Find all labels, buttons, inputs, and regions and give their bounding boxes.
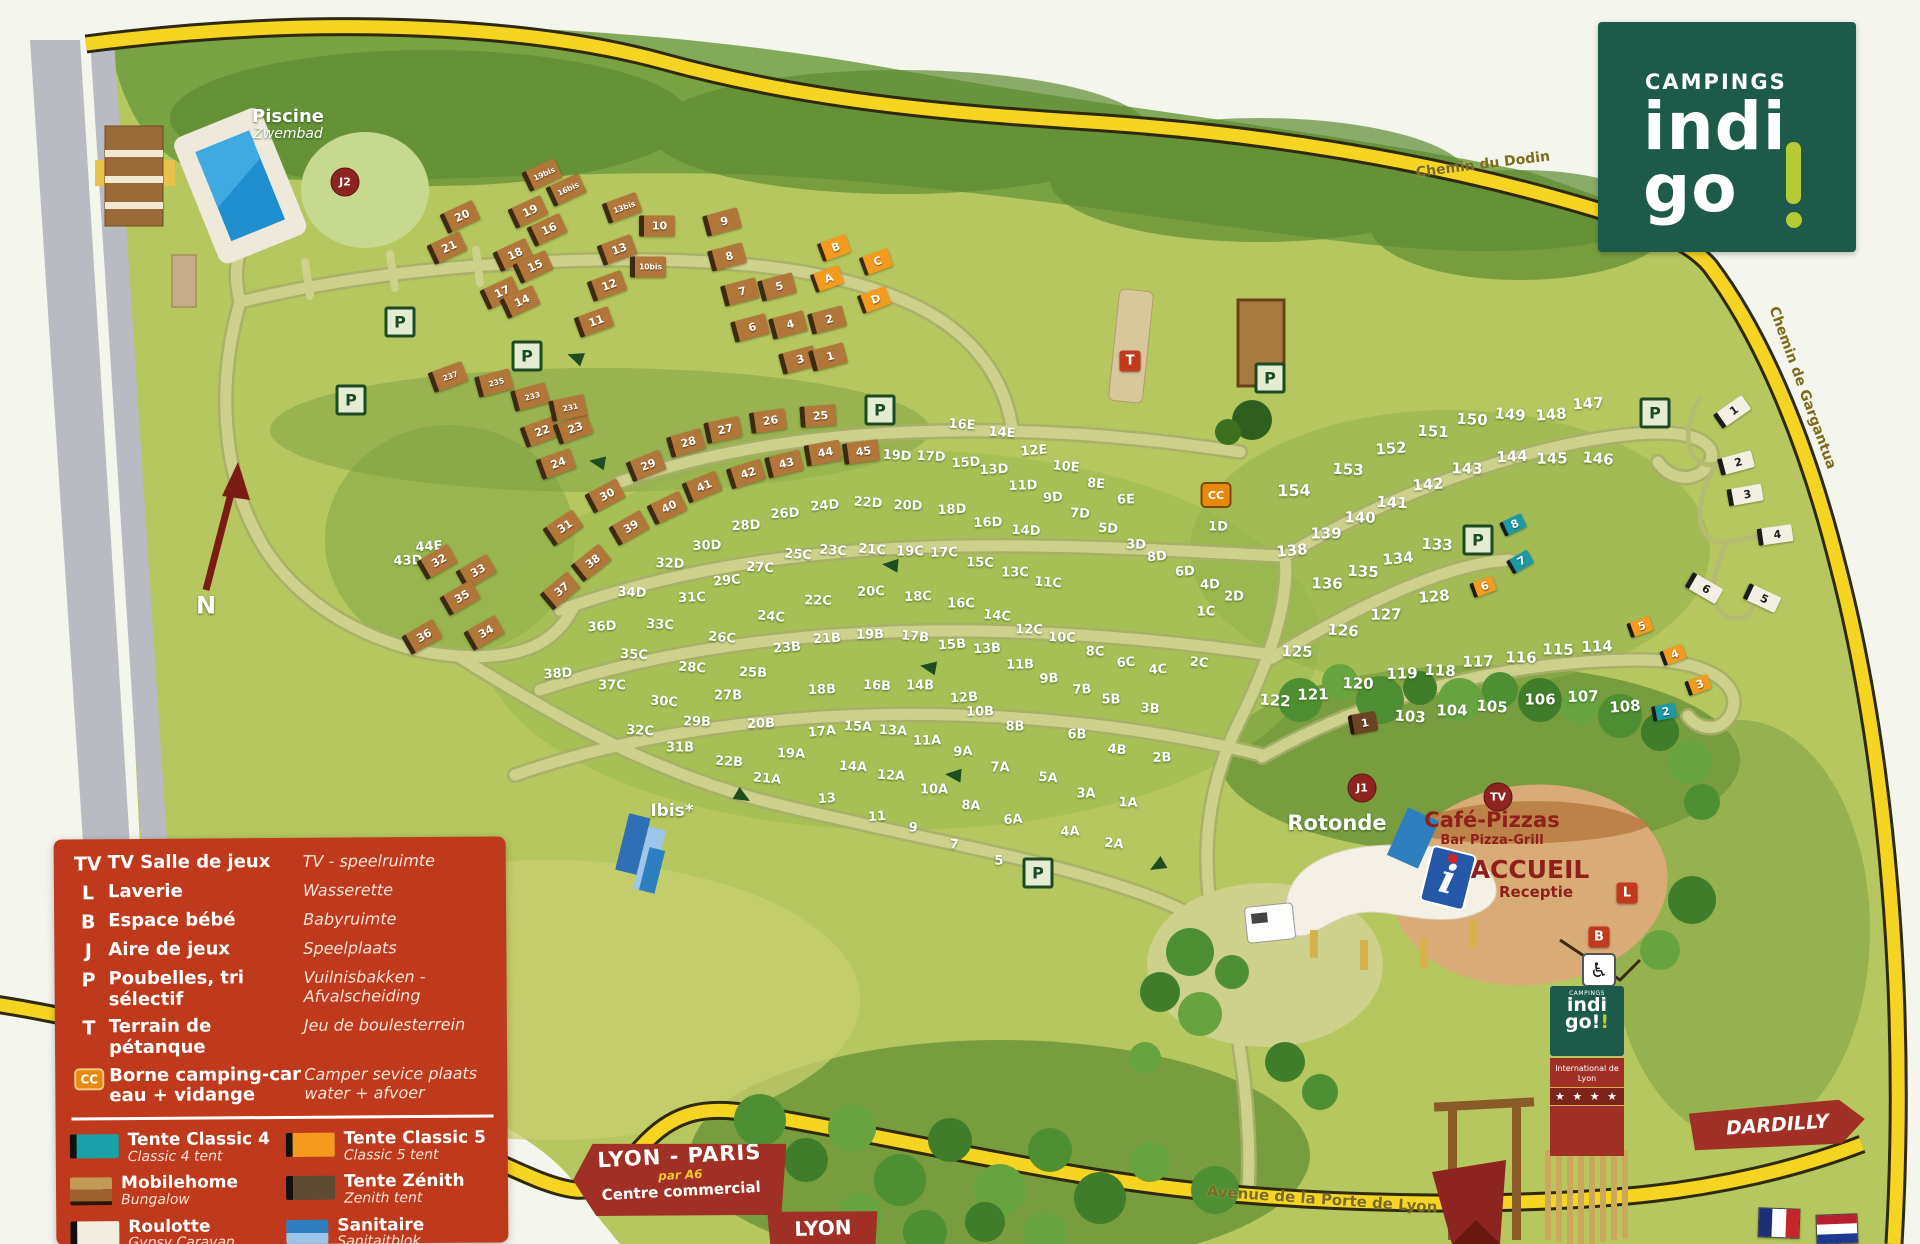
pitch-label: 125 bbox=[1281, 644, 1313, 660]
pitch-label: 6D bbox=[1175, 565, 1195, 579]
legend-label-nl: Jeu de boulesterrein bbox=[304, 1015, 465, 1035]
mobilehome-unit-number: 13 bbox=[610, 241, 628, 257]
pitch-label: 26C bbox=[708, 630, 737, 645]
tente-zenith-marker-number: 1 bbox=[1360, 717, 1369, 729]
pitch-label: 15C bbox=[966, 556, 994, 569]
tente-classic4-marker-number: 8 bbox=[1509, 518, 1521, 531]
roulotte-unit-number: 2 bbox=[1733, 456, 1743, 469]
mobilehome-unit-number: 33 bbox=[469, 562, 488, 579]
pitch-label: 27B bbox=[714, 690, 742, 703]
parking-icon: P bbox=[1463, 525, 1494, 556]
pitch-label: 127 bbox=[1370, 607, 1402, 623]
mobilehome-unit-number: 21 bbox=[440, 239, 459, 255]
pitch-label: 117 bbox=[1462, 654, 1494, 670]
pitch-label: 118 bbox=[1424, 663, 1456, 680]
mobilehome-unit-number: 7 bbox=[737, 285, 747, 298]
roulotte-unit-number: 6 bbox=[1700, 583, 1712, 596]
pitch-label: 106 bbox=[1524, 693, 1555, 708]
pitch-label: 2D bbox=[1224, 591, 1244, 604]
pitch-label: 16E bbox=[948, 418, 976, 433]
mobilehome-unit-number: 4 bbox=[785, 318, 795, 331]
legend-accommodation-fr: Roulotte bbox=[128, 1218, 235, 1237]
legend-facility-row: TTerrain de pétanqueJeu de boulesterrein bbox=[69, 1015, 495, 1059]
legend-accommodation-fr: Sanitaire bbox=[337, 1217, 424, 1235]
sign-lyon-paris: LYON - PARIS par A6 Centre commercial bbox=[571, 1130, 790, 1225]
tente-classic5-marker-number: 5 bbox=[1636, 620, 1647, 633]
mobilehome-unit-number: 19 bbox=[521, 203, 540, 219]
mobilehome-unit-number: 16bis bbox=[556, 181, 580, 197]
legend-facility-row: JAire de jeuxSpeelplaats bbox=[68, 938, 494, 963]
mobilehome-unit-number: 43 bbox=[778, 456, 796, 470]
legend-label-nl: Camper sevice plaats water + afvoer bbox=[304, 1063, 477, 1103]
mobilehome-unit-number: 235 bbox=[488, 377, 505, 388]
bar-pizza-grill-label: Bar Pizza-Grill bbox=[1440, 834, 1543, 848]
tente-classic4-marker-number: 7 bbox=[1516, 554, 1528, 567]
direction-arrow-icon bbox=[919, 659, 937, 676]
mobilehome-unit-number: 34 bbox=[477, 623, 496, 640]
pitch-label: 1D bbox=[1208, 520, 1228, 533]
tente-classic5-unit-number: C bbox=[872, 255, 883, 268]
pitch-label: 152 bbox=[1375, 440, 1407, 457]
pitch-label: 5A bbox=[1038, 771, 1058, 786]
pitch-label: 6A bbox=[1003, 813, 1023, 827]
mobilehome-unit-number: 237 bbox=[442, 370, 459, 382]
mobilehome-unit-number: 233 bbox=[524, 391, 541, 402]
pitch-label: 14A bbox=[839, 760, 868, 774]
mobilehome-unit-number: 26 bbox=[762, 414, 779, 427]
cafe-pizzas-label: Café-Pizzas bbox=[1424, 809, 1559, 831]
parking-icon: P bbox=[1023, 858, 1054, 889]
north-label: N bbox=[196, 593, 216, 618]
pitch-label: 5 bbox=[994, 854, 1003, 867]
mobilehome-unit-number: 11 bbox=[587, 313, 605, 329]
pitch-label: 35C bbox=[620, 648, 648, 662]
t-marker-icon: T bbox=[1120, 351, 1141, 372]
pitch-label: 38D bbox=[543, 667, 573, 682]
legend-accommodation-text: Tente Classic 4Classic 4 tent bbox=[128, 1131, 270, 1165]
mobilehome-unit-number: 19bis bbox=[532, 166, 556, 182]
pitch-label: 151 bbox=[1417, 424, 1449, 441]
legend-facilities: TVTV Salle de jeuxTV - speelruimteLLaver… bbox=[68, 851, 496, 1108]
legend-label-fr: Aire de jeux bbox=[108, 939, 303, 961]
legend-accommodation-nl: Classic 4 tent bbox=[128, 1149, 270, 1165]
pitch-label: 21B bbox=[813, 632, 842, 646]
roulotte-unit-number: 1 bbox=[1728, 404, 1741, 417]
pitch-label: 147 bbox=[1572, 396, 1604, 413]
legend-accommodation-text: Tente Classic 5Classic 5 tent bbox=[344, 1130, 486, 1164]
tente-classic5-marker-number: 4 bbox=[1669, 648, 1680, 661]
mobilehome-unit-number: 2 bbox=[824, 313, 834, 326]
pitch-label: 20D bbox=[893, 499, 922, 513]
wheelchair-icon: ♿ bbox=[1582, 953, 1616, 987]
pitch-label: 11B bbox=[1006, 658, 1034, 671]
legend-label-nl: TV - speelruimte bbox=[303, 851, 435, 871]
pitch-label: 16B bbox=[863, 679, 892, 693]
legend-facility-row: LLaverieWasserette bbox=[68, 880, 494, 905]
j2-marker-icon: J2 bbox=[331, 168, 360, 197]
pitch-label: 128 bbox=[1418, 588, 1451, 606]
legend-facility-row: TVTV Salle de jeuxTV - speelruimte bbox=[68, 851, 494, 876]
pitch-label: 104 bbox=[1436, 704, 1467, 719]
pitch-label: 24D bbox=[810, 498, 840, 513]
pitch-label: 14C bbox=[983, 608, 1012, 623]
camper-service-icon: CC bbox=[74, 1068, 104, 1090]
pitch-label: 121 bbox=[1297, 687, 1329, 703]
pitch-label: 150 bbox=[1456, 412, 1488, 429]
pitch-label: 145 bbox=[1536, 451, 1568, 467]
legend-accommodation-nl: Zenith tent bbox=[344, 1191, 465, 1207]
mobilehome-unit-number: 25 bbox=[812, 410, 828, 422]
mobilehome-unit-number: 28 bbox=[680, 435, 698, 450]
tente-classic5-unit-number: D bbox=[870, 293, 882, 306]
pitch-label: 2A bbox=[1104, 837, 1124, 852]
mobilehome-unit-number: 1 bbox=[825, 350, 835, 363]
legend-facility-row: CCBorne camping-car eau + vidangeCamper … bbox=[69, 1063, 495, 1107]
pitch-label: 134 bbox=[1382, 550, 1415, 568]
c4-swatch bbox=[70, 1134, 119, 1158]
postsign-subtitle: International de Lyon bbox=[1550, 1064, 1624, 1083]
mobilehome-unit-number: 14 bbox=[513, 293, 532, 309]
pitch-label: 103 bbox=[1394, 708, 1426, 725]
campground-map-page: i bbox=[0, 0, 1920, 1244]
rotonde-label: Rotonde bbox=[1287, 812, 1386, 834]
mobilehome-unit-number: 20 bbox=[453, 208, 472, 224]
pitch-label: 1A bbox=[1118, 796, 1138, 810]
pitch-label: 19D bbox=[882, 449, 912, 464]
pitch-label: 9A bbox=[953, 745, 973, 759]
legend-accommodation-fr: Mobilehome bbox=[121, 1175, 238, 1194]
legend-label-nl: Babyruimte bbox=[303, 909, 396, 929]
pitch-label: 142 bbox=[1412, 476, 1444, 493]
pitch-label: 25C bbox=[784, 548, 812, 563]
c5-swatch bbox=[286, 1133, 335, 1157]
mobilehome-unit-number: 31 bbox=[556, 518, 575, 536]
legend-symbol: T bbox=[69, 1018, 109, 1040]
mobilehome-unit-number: 36 bbox=[415, 627, 434, 644]
legend-accommodation-nl: Classic 5 tent bbox=[344, 1148, 486, 1164]
pitch-label: 12A bbox=[877, 769, 906, 784]
mobilehome-unit-number: 24 bbox=[549, 455, 567, 471]
pitch-label: 26D bbox=[770, 507, 800, 521]
pitch-label: 115 bbox=[1542, 642, 1574, 658]
pitch-label: 120 bbox=[1342, 676, 1374, 692]
pitch-label: 4A bbox=[1060, 825, 1080, 839]
pitch-label: 32C bbox=[626, 724, 654, 738]
pitch-label: 21A bbox=[752, 771, 781, 786]
legend-symbol: CC bbox=[69, 1066, 109, 1090]
pool-building bbox=[95, 126, 175, 226]
legend-symbol: TV bbox=[68, 853, 108, 875]
pitch-label: 16C bbox=[947, 598, 975, 611]
legend-accommodation-nl: Gypsy Caravan bbox=[128, 1236, 235, 1244]
legend-accommodation-nl: Sanitaitblok bbox=[337, 1234, 424, 1244]
pitch-label: 18B bbox=[808, 683, 836, 697]
pitch-label: 10E bbox=[1052, 459, 1080, 474]
pitch-label: 28C bbox=[678, 661, 706, 676]
pitch-label: 3D bbox=[1126, 538, 1146, 552]
legend-accommodation-text: Tente ZénithZenith tent bbox=[344, 1173, 465, 1207]
sign-lyon: LYON bbox=[767, 1208, 878, 1244]
pitch-label: 10C bbox=[1048, 631, 1076, 645]
pitch-label: 22B bbox=[715, 755, 744, 769]
b-marker-icon: B bbox=[1589, 927, 1610, 948]
pitch-label: 5D bbox=[1098, 522, 1119, 536]
pitch-label: 22C bbox=[804, 594, 832, 607]
pitch-label: 143 bbox=[1451, 461, 1483, 477]
legend-label-fr: Poubelles, tri sélectif bbox=[108, 968, 303, 1011]
mobilehome-unit-number: 32 bbox=[430, 552, 449, 569]
pitch-label: 154 bbox=[1277, 483, 1311, 500]
pitch-label: 7B bbox=[1072, 683, 1092, 697]
legend-accommodation-item: RoulotteGypsy Caravan bbox=[70, 1218, 280, 1244]
pitch-label: 17C bbox=[930, 546, 958, 559]
pitch-label: 15A bbox=[844, 720, 873, 734]
zen-swatch bbox=[286, 1176, 335, 1200]
mobilehome-unit-number: 9 bbox=[719, 215, 729, 228]
pitch-label: 3B bbox=[1140, 702, 1160, 716]
j1-marker-icon: J1 bbox=[1348, 774, 1377, 803]
pitch-label: 12E bbox=[1020, 443, 1048, 458]
legend-accommodation-nl: Bungalow bbox=[121, 1193, 238, 1209]
legend-label-fr: Terrain de pétanque bbox=[109, 1016, 304, 1059]
ibis-label: Ibis* bbox=[650, 803, 693, 821]
pitch-label: 20C bbox=[857, 585, 885, 599]
pitch-label: 13C bbox=[1001, 567, 1029, 580]
pitch-label: 14B bbox=[906, 680, 934, 693]
legend-accommodation-item: SanitaireSanitaitblok bbox=[286, 1216, 496, 1244]
pitch-label: 3A bbox=[1076, 788, 1095, 801]
pitch-label: 133 bbox=[1421, 537, 1453, 554]
legend-panel: TVTV Salle de jeuxTV - speelruimteLLaver… bbox=[54, 836, 509, 1244]
pitch-label: 9B bbox=[1039, 672, 1059, 686]
pitch-label: 18C bbox=[904, 590, 932, 604]
legend-accommodation-item: Tente ZénithZenith tent bbox=[286, 1173, 496, 1208]
pitch-label: 27C bbox=[746, 561, 774, 575]
legend-accommodation-text: MobilehomeBungalow bbox=[121, 1175, 238, 1209]
legend-label-nl: Vuilnisbakken - Afvalscheiding bbox=[303, 967, 494, 1007]
mobilehome-unit-number: 37 bbox=[553, 580, 572, 598]
pitch-label: 9 bbox=[908, 821, 918, 835]
mobilehome-unit-number: 12 bbox=[600, 277, 618, 293]
legend-accommodation-item: Tente Classic 4Classic 4 tent bbox=[70, 1131, 280, 1166]
mobilehome-unit-number: 29 bbox=[639, 457, 657, 473]
pitch-label: 19C bbox=[896, 546, 924, 559]
pitch-label: 6B bbox=[1068, 729, 1087, 742]
pitch-label: 11A bbox=[913, 734, 941, 747]
pitch-label: 29C bbox=[713, 573, 742, 588]
pitch-label: 6E bbox=[1117, 493, 1135, 507]
san-swatch bbox=[286, 1219, 328, 1243]
legend-symbol: L bbox=[68, 882, 108, 904]
pitch-label: 148 bbox=[1535, 406, 1567, 423]
mobilehome-unit-number: 16 bbox=[540, 221, 559, 237]
pitch-label: 7 bbox=[949, 838, 959, 852]
legend-label-fr: Espace bébé bbox=[108, 910, 303, 932]
legend-label-nl: Speelplaats bbox=[303, 938, 396, 958]
legend-label-fr: Borne camping-car eau + vidange bbox=[109, 1065, 304, 1108]
pitch-label: 105 bbox=[1476, 698, 1508, 715]
mobilehome-unit-number: 23 bbox=[566, 420, 584, 436]
pitch-label: 30C bbox=[650, 695, 678, 710]
legend-label-fr: Laverie bbox=[108, 881, 303, 903]
dutch-flag-icon bbox=[1815, 1213, 1858, 1244]
legend-accommodation-fr: Tente Classic 4 bbox=[128, 1131, 270, 1150]
piscine-label: Piscine Zwembad bbox=[252, 108, 324, 142]
pitch-label: 29B bbox=[683, 715, 711, 728]
pitch-label: 108 bbox=[1609, 698, 1641, 715]
parking-icon: P bbox=[1255, 363, 1286, 394]
small-hut bbox=[172, 255, 196, 307]
pitch-label: 31B bbox=[666, 742, 694, 755]
mobilehome-unit-number: 41 bbox=[695, 478, 713, 494]
direction-arrow-icon bbox=[944, 767, 961, 782]
pitch-label: 9D bbox=[1043, 491, 1064, 505]
legend-accommodation-text: SanitaireSanitaitblok bbox=[337, 1217, 424, 1244]
mobilehome-unit: 10 bbox=[639, 216, 675, 237]
pitch-label: 22D bbox=[853, 496, 883, 511]
roulotte-unit-number: 4 bbox=[1773, 529, 1782, 541]
playground-area bbox=[301, 132, 429, 248]
postsign-stars: ★ ★ ★ ★ bbox=[1550, 1087, 1624, 1106]
camper-service-icon: CC bbox=[1201, 482, 1232, 508]
parking-icon: P bbox=[512, 341, 543, 372]
pitch-label: 140 bbox=[1344, 510, 1376, 526]
mobilehome-unit-number: 27 bbox=[717, 423, 734, 437]
tente-classic4-marker-number: 2 bbox=[1661, 706, 1670, 718]
campings-indigo-logo: CAMPINGS indi go bbox=[1598, 22, 1856, 252]
zwembad-label: Zwembad bbox=[252, 127, 324, 142]
mobilehome-unit-number: 35 bbox=[453, 588, 472, 605]
pitch-label: 34D bbox=[617, 586, 647, 600]
pitch-label: 23C bbox=[819, 544, 847, 559]
pitch-label: 25B bbox=[739, 666, 767, 680]
legend-facility-row: BEspace bébéBabyruimte bbox=[68, 909, 494, 934]
mobilehome-unit-number: 8 bbox=[724, 250, 734, 263]
legend-label-nl: Wasserette bbox=[303, 880, 393, 900]
legend-symbol: P bbox=[68, 969, 108, 991]
mobilehome-unit-number: 38 bbox=[584, 552, 603, 570]
pitch-label: 5B bbox=[1102, 694, 1121, 707]
pitch-label: 36D bbox=[587, 620, 617, 634]
mobilehome-unit-number: 5 bbox=[774, 280, 784, 293]
pitch-label: 12C bbox=[1015, 623, 1043, 636]
parking-icon: P bbox=[1640, 398, 1671, 429]
pitch-label: 4D bbox=[1200, 578, 1220, 592]
legend-accommodation-fr: Tente Zénith bbox=[344, 1173, 465, 1192]
pitch-label: 8B bbox=[1006, 721, 1025, 734]
pitch-label: 14E bbox=[988, 426, 1016, 441]
legend-accommodation-fr: Tente Classic 5 bbox=[344, 1130, 486, 1149]
pitch-label: 13B bbox=[973, 642, 1002, 656]
pitch-label: 37C bbox=[598, 680, 626, 693]
pitch-label: 2C bbox=[1189, 656, 1209, 671]
mobilehome-unit-number: 42 bbox=[739, 466, 757, 481]
bush-2 bbox=[1215, 419, 1241, 445]
mobilehome-unit-number: 10bis bbox=[639, 263, 662, 271]
pitch-label: 8E bbox=[1086, 477, 1105, 492]
legend-divider bbox=[72, 1115, 494, 1121]
pitch-label: 153 bbox=[1332, 462, 1364, 479]
tente-classic5-unit-number: A bbox=[823, 272, 835, 285]
legend-accommodation-item: MobilehomeBungalow bbox=[70, 1174, 280, 1209]
pitch-label: 19A bbox=[777, 747, 805, 760]
pitch-label: 107 bbox=[1567, 689, 1599, 705]
pitch-label: 10B bbox=[966, 705, 994, 718]
direction-arrow-icon bbox=[881, 557, 898, 572]
pitch-label: 30D bbox=[692, 539, 721, 553]
pitch-label: 18D bbox=[937, 503, 967, 517]
pitch-label: 14D bbox=[1011, 524, 1041, 538]
roulotte-unit-number: 3 bbox=[1743, 488, 1752, 500]
tente-classic5-unit-number: B bbox=[830, 241, 842, 254]
logo-go-text: go bbox=[1643, 150, 1738, 227]
pitch-label: 135 bbox=[1347, 564, 1379, 581]
pitch-label: 8A bbox=[961, 799, 981, 813]
legend-label-fr: TV Salle de jeux bbox=[108, 852, 303, 874]
pitch-label: 146 bbox=[1582, 450, 1615, 468]
pitch-label: 4B bbox=[1107, 743, 1127, 758]
pitch-label: 28D bbox=[731, 519, 761, 533]
legend-accommodation-item: Tente Classic 5Classic 5 tent bbox=[286, 1130, 496, 1165]
mobilehome-unit-number: 6 bbox=[747, 321, 757, 334]
legend-symbol: J bbox=[68, 940, 108, 962]
tente-classic5-marker-number: 6 bbox=[1479, 580, 1490, 593]
pitch-label: 33C bbox=[646, 618, 674, 632]
pitch-label: 23B bbox=[772, 640, 801, 655]
pitch-label: 13 bbox=[817, 792, 836, 807]
pitch-label: 126 bbox=[1327, 622, 1359, 639]
mobilehome-unit-number: 10 bbox=[652, 221, 667, 232]
accueil-label: ACCUEIL bbox=[1471, 857, 1590, 883]
pitch-label: 15D bbox=[951, 456, 981, 471]
mobilehome-unit-number: 231 bbox=[562, 402, 579, 413]
parking-icon: P bbox=[385, 307, 416, 338]
legend-symbol: B bbox=[68, 911, 108, 933]
pitch-label: 19B bbox=[856, 628, 884, 641]
pitch-label: 114 bbox=[1581, 639, 1613, 655]
pitch-label: 31C bbox=[678, 591, 706, 605]
pitch-label: 12B bbox=[950, 691, 979, 706]
mobilehome-unit-number: 39 bbox=[622, 518, 641, 535]
french-flag-icon bbox=[1757, 1207, 1800, 1238]
pitch-label: 141 bbox=[1376, 495, 1408, 512]
pitch-label: 119 bbox=[1386, 666, 1418, 682]
pitch-label: 122 bbox=[1259, 692, 1291, 709]
mobilehome-unit-number: 15 bbox=[526, 258, 545, 274]
indigo-entrance-sign: CAMPINGS indi go!! International de Lyon… bbox=[1550, 986, 1624, 1156]
pitch-label: 6C bbox=[1116, 656, 1136, 671]
logo-exclamation-icon bbox=[1786, 142, 1802, 228]
mobilehome-unit-number: 30 bbox=[598, 486, 617, 503]
mh-swatch bbox=[70, 1178, 112, 1206]
pitch-label: 4C bbox=[1148, 663, 1167, 677]
pitch-label: 16D bbox=[973, 516, 1002, 530]
mobilehome-unit-number: 44 bbox=[817, 446, 834, 459]
pitch-label: 8D bbox=[1147, 550, 1168, 565]
rl-swatch bbox=[70, 1221, 119, 1244]
mobilehome-unit-number: 45 bbox=[855, 445, 872, 458]
pitch-label: 10A bbox=[920, 784, 948, 797]
l-marker-icon: L bbox=[1617, 883, 1638, 904]
pitch-label: 15B bbox=[938, 638, 967, 653]
pitch-label: 8C bbox=[1086, 645, 1105, 658]
pitch-label: 11D bbox=[1008, 479, 1037, 493]
pitch-label: 17A bbox=[807, 724, 836, 739]
legend-facility-row: PPoubelles, tri sélectifVuilnisbakken - … bbox=[68, 967, 494, 1011]
pitch-label: 7D bbox=[1070, 507, 1090, 521]
direction-arrow-icon bbox=[588, 454, 606, 471]
legend-accommodation-text: RoulotteGypsy Caravan bbox=[128, 1218, 235, 1244]
